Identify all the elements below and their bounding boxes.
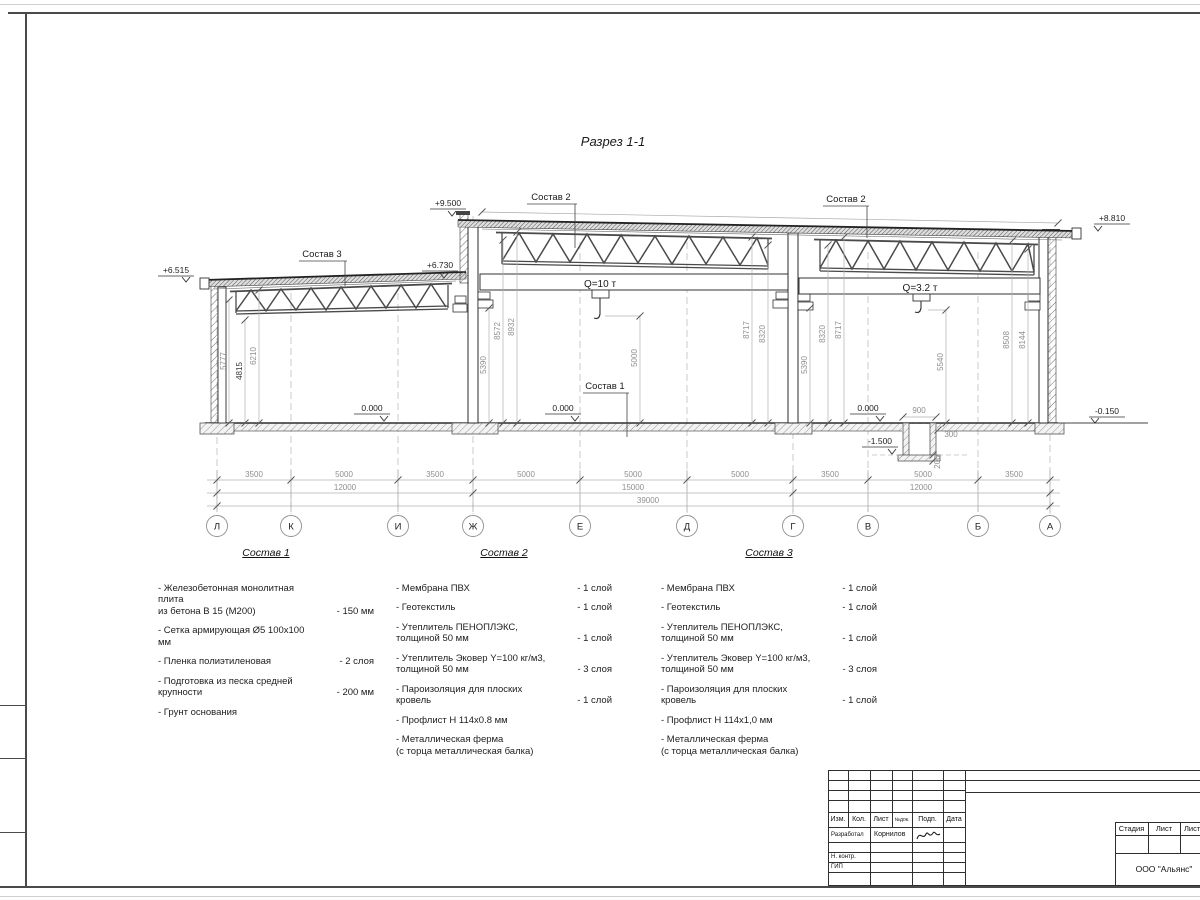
dim-label: 3500 <box>245 470 263 479</box>
grid-axis-label: Д <box>684 522 691 533</box>
crane-hook-block <box>913 294 930 301</box>
grid-bubble: Л <box>207 516 228 537</box>
tb-header-ndok: №док. <box>892 812 912 827</box>
column <box>468 221 478 423</box>
tb-stage-header: Стадия <box>1115 822 1148 835</box>
tb-header-list: Лист <box>870 812 892 827</box>
composition-item: - Мембрана ПВХ- 1 слой <box>396 583 612 595</box>
grid-bubble: Г <box>783 516 804 537</box>
composition-item: - Подготовка из песка среднейкрупности- … <box>158 676 374 699</box>
dim-label: 5540 <box>936 353 945 371</box>
crane-beam-right: Q=3.2 т <box>799 278 1040 313</box>
composition-title: Состав 3 <box>661 548 877 560</box>
corbel <box>798 302 813 310</box>
svg-text:0.000: 0.000 <box>552 403 574 413</box>
svg-text:+8.810: +8.810 <box>1099 213 1126 223</box>
frame-left-tick <box>0 705 26 706</box>
svg-text:-1.500: -1.500 <box>868 436 892 446</box>
svg-text:Состав 2: Состав 2 <box>826 194 865 205</box>
roof-edge-detail <box>1072 228 1081 239</box>
grid-bubble: Ж <box>463 516 484 537</box>
tb-header-kol: Кол. <box>848 812 870 827</box>
column <box>1039 237 1048 423</box>
tb-gip-label: ГИП <box>828 862 873 872</box>
dim-label: 8508 <box>1002 331 1011 349</box>
dim-label: 5000 <box>914 470 932 479</box>
dim-label: 8572 <box>493 322 502 340</box>
dim-label: 5000 <box>517 470 535 479</box>
grid-axis-label: К <box>288 522 294 533</box>
elevation-mark: 0.000 <box>545 403 581 421</box>
tb-sheet-header: Лист <box>1148 822 1180 835</box>
footing <box>452 423 498 434</box>
dim-label: 3500 <box>821 470 839 479</box>
dim-label: 12000 <box>910 483 933 492</box>
grid-bubbles: Л К И Ж Е Д Г В Б А <box>207 516 1061 537</box>
tb-developer-label: Разработал <box>828 827 873 842</box>
dim-label: 5000 <box>630 349 639 367</box>
frame-left-tick <box>0 758 26 759</box>
composition-item: - Утеплитель Эковер Y=100 кг/м3,толщиной… <box>661 653 877 676</box>
dim-label: 4815 <box>235 362 244 380</box>
composition-item: - Пароизоляция для плоских кровель- 1 сл… <box>396 684 612 707</box>
truss <box>496 233 772 270</box>
elevation-mark: -1.500 <box>862 436 898 454</box>
composition-item: - Профлист Н 114х0.8 мм <box>396 715 612 727</box>
grid-bubble: И <box>388 516 409 537</box>
dim-label: 5000 <box>624 470 642 479</box>
composition-item: - Пленка полиэтиленовая- 2 слоя <box>158 656 374 668</box>
left-building <box>200 272 467 423</box>
composition-leader: Состав 2 <box>527 192 577 248</box>
truss <box>814 240 1038 276</box>
dim-label: 5777 <box>219 352 228 370</box>
dim-label: 6210 <box>249 347 258 365</box>
composition-list-2: Состав 2 - Мембрана ПВХ- 1 слой- Геотекс… <box>396 548 612 765</box>
section-drawing: 900 300 200 <box>0 0 1200 560</box>
grid-axis-label: А <box>1047 522 1054 533</box>
composition-item: - Мембрана ПВХ- 1 слой <box>661 583 877 595</box>
elevation-mark: +8.810 <box>1094 213 1130 231</box>
elevation-mark: 0.000 <box>354 403 390 421</box>
grid-axis-label: Г <box>790 522 795 533</box>
composition-list-1: Состав 1 - Железобетонная монолитная пли… <box>158 548 374 726</box>
svg-text:+6.515: +6.515 <box>163 265 190 275</box>
corbel <box>1028 294 1040 301</box>
dim-label: 5390 <box>479 356 488 374</box>
crane-capacity-label: Q=3.2 т <box>903 283 938 294</box>
dim-label: 3500 <box>1005 470 1023 479</box>
corbel <box>798 294 810 301</box>
tb-ncontr-label: Н. контр. <box>828 852 873 862</box>
crane-capacity-label: Q=10 т <box>584 279 617 290</box>
dim-label: 5000 <box>335 470 353 479</box>
parapet-cap <box>456 211 470 215</box>
wall <box>1048 233 1056 423</box>
grid-axis-label: И <box>395 522 402 533</box>
dimension-rows: 3500 5000 3500 5000 5000 5000 3500 5000 … <box>207 470 1060 512</box>
grid-bubble: Д <box>677 516 698 537</box>
roof-edge-detail <box>200 278 209 289</box>
dim-label: 8932 <box>507 318 516 336</box>
composition-item: - Профлист Н 114х1,0 мм <box>661 715 877 727</box>
tb-signature <box>912 827 943 842</box>
svg-text:+6.730: +6.730 <box>427 260 454 270</box>
vertical-dimensions <box>229 232 1028 423</box>
grid-axis-label: Ж <box>469 522 478 533</box>
tb-header-data: Дата <box>943 812 965 827</box>
composition-item: - Утеплитель ПЕНОПЛЭКС,толщиной 50 мм- 1… <box>661 622 877 645</box>
dim-label: 15000 <box>622 483 645 492</box>
dim-label: 8144 <box>1018 331 1027 349</box>
crane-beam-mid: Q=10 т <box>480 274 788 319</box>
dimension-labels: 3500 5000 3500 5000 5000 5000 3500 5000 … <box>245 470 1023 505</box>
svg-text:-0.150: -0.150 <box>1095 406 1119 416</box>
composition-item: - Геотекстиль- 1 слой <box>396 602 612 614</box>
tb-company-name: ООО "Альянс" <box>1115 853 1200 885</box>
dim-label: 12000 <box>334 483 357 492</box>
composition-item: - Железобетонная монолитная плитаиз бето… <box>158 583 374 618</box>
corbel <box>478 292 490 299</box>
svg-text:+9.500: +9.500 <box>435 198 462 208</box>
corbel <box>773 300 788 308</box>
title-block: Изм. Кол. Лист №док. Подп. Дата Разработ… <box>828 770 1200 886</box>
composition-title: Состав 1 <box>158 548 374 560</box>
grid-axis-label: В <box>865 522 871 533</box>
frame-bottom <box>0 886 1200 888</box>
tb-header-podp: Подп. <box>912 812 943 827</box>
elevation-mark: -0.150 <box>1089 406 1125 423</box>
vertical-dimension-labels: 5777 4815 6210 5390 8572 8932 5000 8717 … <box>219 318 1027 380</box>
composition-list-3: Состав 3 - Мембрана ПВХ- 1 слой- Геотекс… <box>661 548 877 765</box>
wall <box>211 282 218 423</box>
composition-item: - Грунт основания <box>158 707 374 719</box>
composition-item: - Сетка армирующая Ø5 100х100 мм <box>158 625 374 648</box>
grid-bubble: Е <box>570 516 591 537</box>
corbel <box>776 292 788 299</box>
truss <box>230 284 452 315</box>
crane-hook-icon <box>915 308 921 313</box>
footing <box>1035 423 1064 434</box>
vertical-dimension-ticks <box>226 229 1032 427</box>
grid-bubble: Б <box>968 516 989 537</box>
dim-label: 8717 <box>742 321 751 339</box>
tb-developer-name: Корнилов <box>871 827 915 842</box>
composition-item: - Геотекстиль- 1 слой <box>661 602 877 614</box>
corbel <box>455 296 466 303</box>
dim-label: 3500 <box>426 470 444 479</box>
corbel <box>453 304 467 312</box>
tall-building <box>456 209 1081 424</box>
dim-label: 5390 <box>800 356 809 374</box>
grid-axis-label: Е <box>577 522 583 533</box>
pit-slab-dim: 200 <box>933 455 942 469</box>
signature-icon <box>914 828 942 842</box>
svg-text:0.000: 0.000 <box>361 403 383 413</box>
svg-text:0.000: 0.000 <box>857 403 879 413</box>
dim-label: 39000 <box>637 496 660 505</box>
paper-edge-bottom <box>0 896 1200 897</box>
elevation-mark: +6.515 <box>158 265 194 282</box>
svg-text:Состав 2: Состав 2 <box>531 192 570 203</box>
grid-bubble: А <box>1040 516 1061 537</box>
composition-item: - Металлическая ферма(с торца металличес… <box>396 734 612 757</box>
composition-item: - Утеплитель ПЕНОПЛЭКС,толщиной 50 мм- 1… <box>396 622 612 645</box>
floor-slab <box>200 423 1148 434</box>
column <box>788 233 798 423</box>
tb-sheets-header: Листов <box>1180 822 1200 835</box>
grid-bubble: К <box>281 516 302 537</box>
composition-title: Состав 2 <box>396 548 612 560</box>
grid-bubble: В <box>858 516 879 537</box>
grid-axis-label: Б <box>975 522 981 533</box>
drawing-sheet: { "page": { "title": "Разрез 1-1" }, "se… <box>0 0 1200 900</box>
grid-axis-label: Л <box>214 522 220 533</box>
composition-item: - Пароизоляция для плоских кровель- 1 сл… <box>661 684 877 707</box>
dim-label: 8320 <box>818 325 827 343</box>
crane-hook-icon <box>594 314 600 319</box>
dim-label: 5000 <box>731 470 749 479</box>
footing <box>775 423 812 434</box>
dim-label: 8717 <box>834 321 843 339</box>
tb-header-izm: Изм. <box>828 812 848 827</box>
dim-label: 8320 <box>758 325 767 343</box>
svg-text:Состав 3: Состав 3 <box>302 249 341 260</box>
svg-text:Состав 1: Состав 1 <box>585 381 624 392</box>
composition-item: - Металлическая ферма(с торца металличес… <box>661 734 877 757</box>
pit-width-dim: 900 <box>912 406 926 415</box>
corbel <box>1025 302 1040 310</box>
crane-hook-block <box>592 290 609 298</box>
footing <box>200 423 234 434</box>
frame-left-tick <box>0 832 26 833</box>
composition-item: - Утеплитель Эковер Y=100 кг/м3,толщиной… <box>396 653 612 676</box>
pit-offset-dim: 300 <box>944 430 958 439</box>
